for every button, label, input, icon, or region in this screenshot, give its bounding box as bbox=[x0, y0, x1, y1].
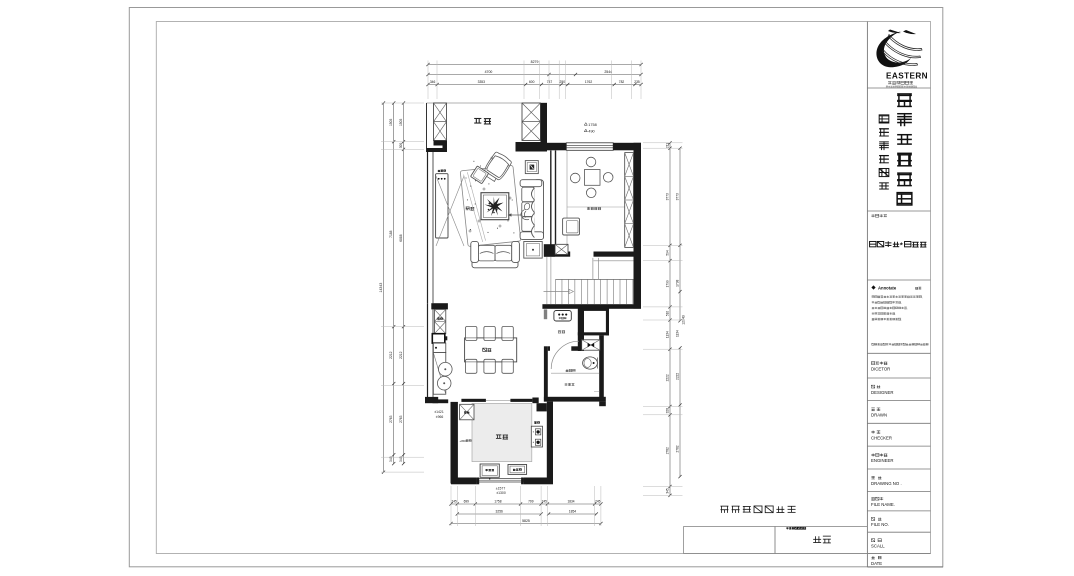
svg-text:DRAWING NO .: DRAWING NO . bbox=[871, 481, 902, 486]
svg-text:7188: 7188 bbox=[389, 230, 393, 238]
svg-text:235: 235 bbox=[634, 80, 640, 84]
svg-text:3353: 3353 bbox=[478, 80, 486, 84]
svg-text:490: 490 bbox=[588, 130, 594, 134]
svg-text:±966: ±966 bbox=[436, 415, 444, 419]
svg-text:DRAWN: DRAWN bbox=[871, 412, 887, 417]
svg-text:2222: 2222 bbox=[675, 373, 679, 380]
svg-text:594: 594 bbox=[665, 250, 669, 256]
svg-text:DICETOR: DICETOR bbox=[871, 366, 890, 371]
svg-text:CHECKER: CHECKER bbox=[871, 435, 892, 440]
svg-text:1503: 1503 bbox=[389, 119, 393, 127]
svg-text:FILE NAME.: FILE NAME. bbox=[871, 502, 895, 507]
svg-text:1134: 1134 bbox=[665, 331, 669, 338]
svg-text:1798: 1798 bbox=[675, 280, 679, 287]
svg-text:782: 782 bbox=[619, 80, 625, 84]
svg-text:ENGINEER: ENGINEER bbox=[871, 458, 893, 463]
svg-text:3256: 3256 bbox=[496, 509, 504, 513]
svg-text:8279: 8279 bbox=[531, 60, 539, 64]
svg-text:799: 799 bbox=[528, 499, 534, 503]
svg-text:DATE: DATE bbox=[871, 561, 882, 566]
svg-text:±1577: ±1577 bbox=[496, 486, 506, 490]
svg-text:6888: 6888 bbox=[399, 234, 403, 242]
svg-text:245: 245 bbox=[595, 499, 601, 503]
svg-text:1134: 1134 bbox=[675, 330, 679, 337]
svg-text:2763: 2763 bbox=[389, 415, 393, 423]
svg-text:1762: 1762 bbox=[585, 80, 593, 84]
svg-text:300: 300 bbox=[399, 143, 403, 149]
svg-text:Annotate: Annotate bbox=[878, 286, 897, 291]
svg-text:250: 250 bbox=[560, 80, 566, 84]
svg-text:EASTERN: EASTERN bbox=[886, 72, 928, 81]
svg-text:3773: 3773 bbox=[675, 193, 679, 200]
svg-text:1799: 1799 bbox=[665, 280, 669, 287]
svg-text:699: 699 bbox=[464, 499, 470, 503]
svg-text:1854: 1854 bbox=[569, 509, 577, 513]
svg-text:2763: 2763 bbox=[399, 415, 403, 423]
svg-text:510: 510 bbox=[665, 311, 669, 317]
svg-text:DESIGNER: DESIGNER bbox=[871, 390, 893, 395]
svg-text:2544: 2544 bbox=[604, 70, 612, 74]
svg-text:747: 747 bbox=[547, 80, 553, 84]
svg-text:600: 600 bbox=[529, 80, 535, 84]
svg-text:3773: 3773 bbox=[665, 193, 669, 200]
svg-text:245: 245 bbox=[451, 499, 457, 503]
svg-text:14343: 14343 bbox=[379, 283, 383, 293]
svg-text:FILE NO.: FILE NO. bbox=[871, 522, 889, 527]
svg-text:2222: 2222 bbox=[665, 374, 669, 381]
svg-text:4700: 4700 bbox=[485, 70, 493, 74]
svg-text:2782: 2782 bbox=[675, 445, 679, 452]
svg-text:211: 211 bbox=[665, 143, 669, 148]
svg-text:245: 245 bbox=[542, 499, 548, 503]
svg-text:345: 345 bbox=[665, 488, 669, 494]
svg-text:1758: 1758 bbox=[588, 123, 596, 127]
svg-text:±1300: ±1300 bbox=[496, 491, 506, 495]
svg-text:2212: 2212 bbox=[399, 351, 403, 359]
svg-text:5825: 5825 bbox=[522, 519, 530, 523]
svg-text:2212: 2212 bbox=[389, 351, 393, 359]
svg-text:±1421: ±1421 bbox=[434, 410, 444, 414]
svg-text:1758: 1758 bbox=[494, 499, 501, 503]
svg-text:*: * bbox=[900, 241, 903, 250]
svg-text:2782: 2782 bbox=[665, 447, 669, 454]
svg-text:SCALL: SCALL bbox=[871, 543, 885, 548]
svg-text:328: 328 bbox=[665, 408, 669, 414]
svg-text:1503: 1503 bbox=[399, 119, 403, 127]
svg-text:346: 346 bbox=[430, 80, 436, 84]
svg-text:1834: 1834 bbox=[567, 499, 574, 503]
